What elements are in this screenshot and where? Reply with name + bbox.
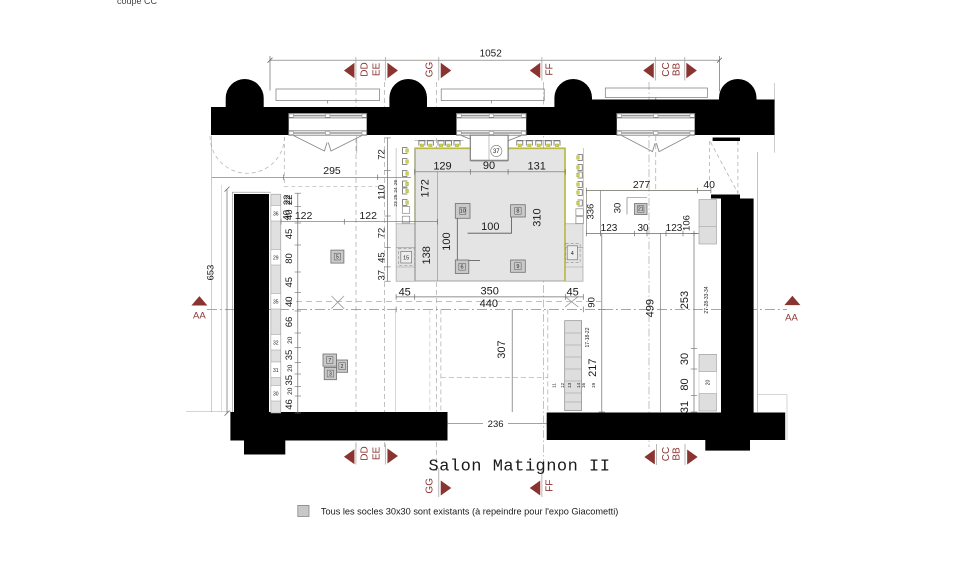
svg-text:217: 217 bbox=[587, 359, 599, 377]
svg-text:25: 25 bbox=[393, 194, 399, 200]
svg-text:EE: EE bbox=[372, 63, 383, 77]
svg-text:DD: DD bbox=[359, 62, 370, 76]
svg-text:45: 45 bbox=[566, 286, 578, 298]
svg-text:100: 100 bbox=[481, 221, 499, 233]
svg-text:72: 72 bbox=[376, 149, 387, 160]
svg-text:46: 46 bbox=[284, 399, 295, 410]
svg-text:21: 21 bbox=[638, 207, 644, 213]
svg-text:9: 9 bbox=[516, 264, 519, 270]
svg-text:123: 123 bbox=[666, 223, 683, 234]
svg-text:10: 10 bbox=[460, 209, 466, 215]
svg-text:AA: AA bbox=[193, 311, 206, 322]
svg-text:DD: DD bbox=[359, 446, 370, 460]
svg-text:40: 40 bbox=[284, 296, 295, 307]
svg-text:40: 40 bbox=[703, 179, 715, 191]
svg-text:2: 2 bbox=[341, 364, 344, 370]
svg-text:coupe CC: coupe CC bbox=[117, 0, 158, 6]
svg-text:31: 31 bbox=[273, 368, 279, 374]
svg-text:100: 100 bbox=[441, 232, 453, 250]
svg-text:CC: CC bbox=[661, 62, 672, 76]
svg-text:129: 129 bbox=[433, 160, 451, 172]
svg-text:106: 106 bbox=[681, 215, 692, 231]
svg-text:440: 440 bbox=[480, 298, 498, 310]
svg-text:80: 80 bbox=[284, 253, 295, 264]
svg-text:35: 35 bbox=[273, 300, 279, 306]
svg-text:5: 5 bbox=[336, 254, 339, 260]
svg-text:15: 15 bbox=[403, 256, 409, 262]
svg-text:29: 29 bbox=[273, 256, 279, 262]
svg-text:30: 30 bbox=[273, 392, 279, 398]
svg-text:32: 32 bbox=[273, 341, 279, 347]
svg-text:20: 20 bbox=[706, 380, 712, 386]
svg-text:307: 307 bbox=[496, 340, 508, 358]
svg-text:35: 35 bbox=[284, 350, 295, 361]
svg-text:20: 20 bbox=[287, 387, 294, 395]
svg-text:20: 20 bbox=[287, 364, 294, 372]
svg-text:66: 66 bbox=[284, 317, 295, 328]
svg-text:26: 26 bbox=[393, 180, 399, 186]
svg-text:AA: AA bbox=[785, 313, 798, 324]
svg-text:30: 30 bbox=[613, 203, 624, 214]
svg-text:45: 45 bbox=[399, 286, 411, 298]
svg-text:123: 123 bbox=[601, 223, 618, 234]
svg-text:45: 45 bbox=[284, 277, 295, 288]
svg-text:80: 80 bbox=[679, 378, 691, 390]
svg-text:11: 11 bbox=[551, 383, 557, 388]
svg-text:FF: FF bbox=[545, 63, 556, 75]
svg-text:Salon Matignon II: Salon Matignon II bbox=[429, 458, 611, 477]
svg-text:310: 310 bbox=[532, 208, 544, 226]
svg-text:14: 14 bbox=[576, 383, 582, 389]
svg-text:17-18-22: 17-18-22 bbox=[585, 327, 591, 347]
svg-text:6: 6 bbox=[461, 264, 464, 270]
svg-text:GG: GG bbox=[424, 478, 435, 494]
svg-text:499: 499 bbox=[645, 299, 657, 317]
svg-text:Tous les socles 30x30 sont exi: Tous les socles 30x30 sont existants (à … bbox=[321, 506, 618, 516]
svg-text:45: 45 bbox=[376, 252, 387, 263]
svg-text:110: 110 bbox=[376, 185, 387, 200]
svg-text:19: 19 bbox=[591, 383, 597, 389]
svg-text:30: 30 bbox=[679, 353, 691, 365]
svg-text:30: 30 bbox=[637, 223, 649, 234]
svg-text:122: 122 bbox=[359, 210, 377, 222]
svg-text:277: 277 bbox=[633, 179, 651, 191]
svg-text:45: 45 bbox=[284, 229, 295, 240]
svg-text:1052: 1052 bbox=[480, 49, 503, 60]
svg-text:90: 90 bbox=[587, 297, 598, 308]
svg-text:40: 40 bbox=[282, 210, 293, 221]
svg-text:236: 236 bbox=[488, 419, 504, 430]
svg-text:350: 350 bbox=[481, 285, 499, 297]
svg-text:22: 22 bbox=[282, 195, 293, 206]
svg-text:FF: FF bbox=[545, 480, 556, 492]
svg-text:12: 12 bbox=[560, 383, 566, 389]
svg-text:EE: EE bbox=[372, 447, 383, 461]
svg-text:37: 37 bbox=[376, 270, 387, 281]
svg-text:GG: GG bbox=[424, 62, 435, 78]
svg-text:CC: CC bbox=[661, 447, 672, 461]
svg-text:20: 20 bbox=[287, 336, 294, 344]
svg-text:36: 36 bbox=[273, 212, 279, 218]
svg-text:172: 172 bbox=[420, 179, 432, 197]
svg-text:253: 253 bbox=[679, 291, 691, 309]
svg-text:72: 72 bbox=[376, 228, 387, 239]
svg-text:35: 35 bbox=[284, 375, 295, 386]
svg-text:16: 16 bbox=[581, 383, 587, 389]
svg-text:BB: BB bbox=[672, 447, 683, 461]
svg-text:3: 3 bbox=[329, 371, 332, 377]
svg-text:7: 7 bbox=[328, 358, 331, 364]
svg-text:BB: BB bbox=[672, 63, 683, 77]
svg-text:122: 122 bbox=[295, 210, 313, 222]
svg-text:295: 295 bbox=[323, 165, 341, 177]
svg-text:131: 131 bbox=[528, 160, 546, 172]
svg-text:336: 336 bbox=[585, 204, 596, 220]
svg-text:13: 13 bbox=[567, 383, 573, 389]
svg-text:90: 90 bbox=[483, 160, 495, 172]
svg-text:37: 37 bbox=[493, 149, 500, 155]
svg-text:27-28-33-34: 27-28-33-34 bbox=[704, 286, 710, 313]
svg-text:8: 8 bbox=[516, 209, 519, 215]
svg-text:24: 24 bbox=[393, 187, 399, 193]
svg-text:653: 653 bbox=[206, 265, 217, 281]
svg-text:4: 4 bbox=[571, 251, 574, 257]
svg-text:138: 138 bbox=[421, 246, 433, 264]
svg-text:23: 23 bbox=[393, 201, 399, 207]
svg-text:31: 31 bbox=[679, 401, 691, 413]
